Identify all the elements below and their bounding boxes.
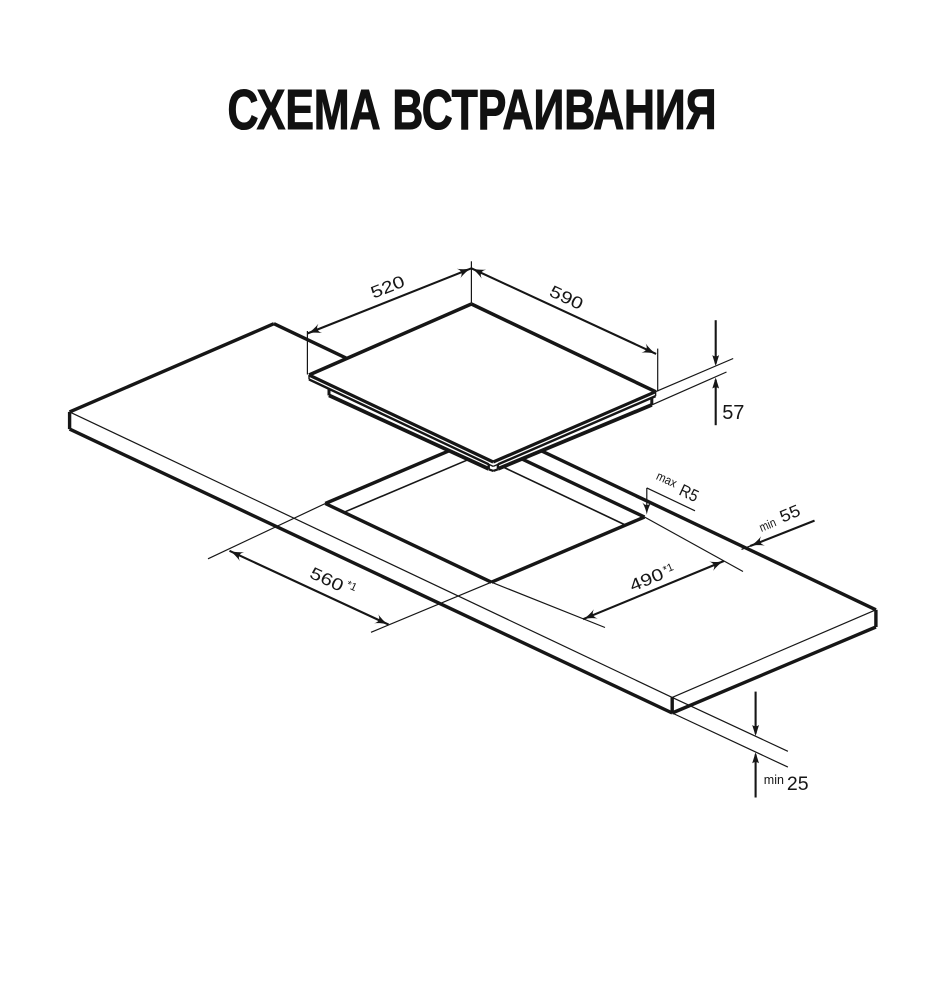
svg-text:СХЕМА ВСТРАИВАНИЯ: СХЕМА ВСТРАИВАНИЯ <box>228 78 717 141</box>
svg-text:25: 25 <box>787 773 809 795</box>
svg-text:min: min <box>764 773 784 787</box>
svg-text:57: 57 <box>722 402 744 424</box>
